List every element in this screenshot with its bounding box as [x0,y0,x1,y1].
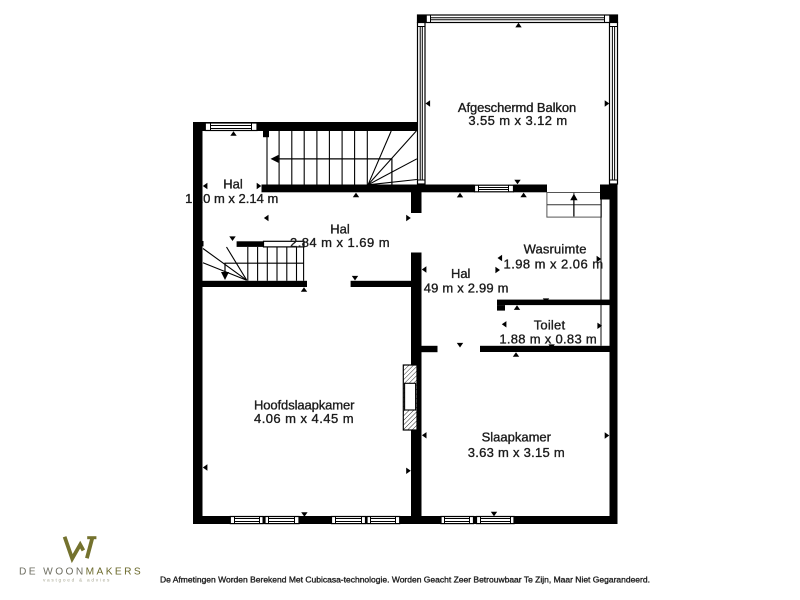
svg-text:1.98 m x 2.06 m: 1.98 m x 2.06 m [504,257,604,272]
svg-text:3.55 m x 3.12 m: 3.55 m x 3.12 m [468,113,567,128]
svg-text:Hal: Hal [451,266,471,281]
svg-text:Hal: Hal [330,221,350,236]
svg-text:Hal: Hal [223,177,243,192]
svg-text:Slaapkamer: Slaapkamer [482,430,552,445]
svg-text:DE WOONMAKERS: DE WOONMAKERS [19,566,143,577]
svg-text:2.84 m x 1.69 m: 2.84 m x 1.69 m [290,235,390,250]
svg-text:Wasruimte: Wasruimte [524,242,587,257]
svg-text:Toilet: Toilet [534,317,566,332]
svg-text:4.06 m x 4.45 m: 4.06 m x 4.45 m [254,411,354,426]
svg-text:vastgoed & advies: vastgoed & advies [43,578,111,584]
svg-text:49 m x 2.99 m: 49 m x 2.99 m [424,281,509,296]
svg-text:1.88 m x 0.83 m: 1.88 m x 0.83 m [499,332,597,347]
svg-text:3.63 m x 3.15 m: 3.63 m x 3.15 m [468,445,565,460]
svg-text:De Afmetingen Worden Berekend: De Afmetingen Worden Berekend Met Cubica… [160,575,650,585]
